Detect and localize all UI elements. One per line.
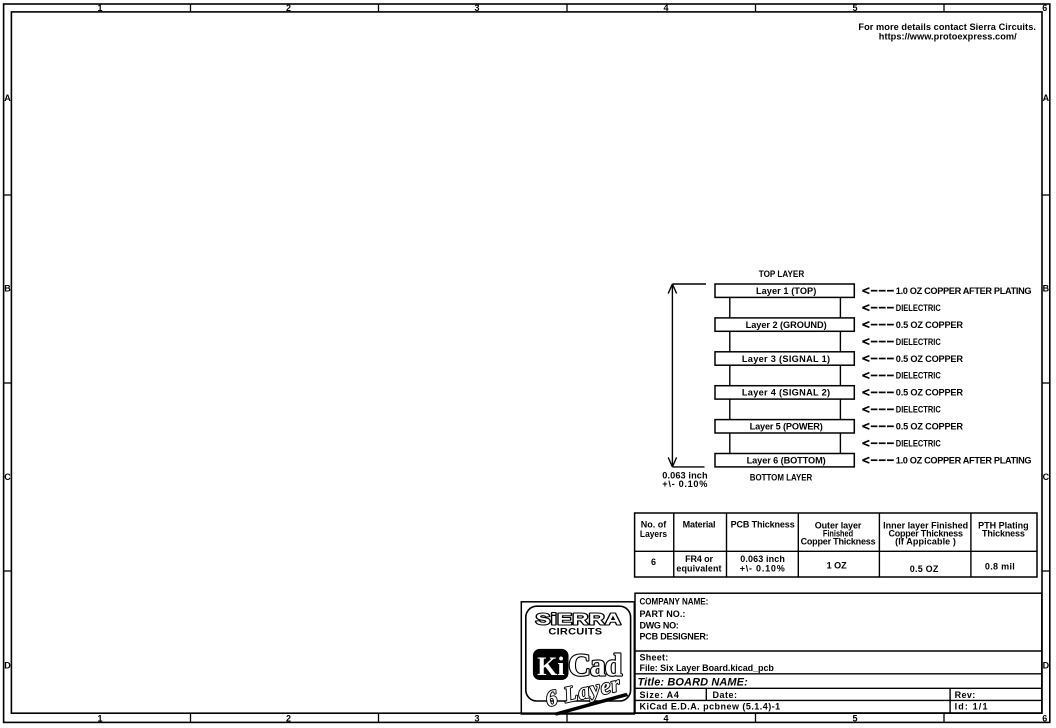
- svg-text:Rev:: Rev:: [955, 690, 976, 700]
- svg-text:A: A: [1043, 93, 1050, 103]
- svg-text:+\- 0.10%: +\- 0.10%: [740, 564, 786, 574]
- svg-text:1.0 OZ COPPER AFTER PLATING: 1.0 OZ COPPER AFTER PLATING: [896, 456, 1032, 466]
- svg-text:3: 3: [474, 3, 479, 13]
- svg-text:PCB DESIGNER:: PCB DESIGNER:: [640, 632, 709, 642]
- svg-text:Thickness: Thickness: [982, 528, 1025, 538]
- svg-text:6: 6: [1042, 713, 1047, 723]
- svg-text:A: A: [4, 93, 11, 103]
- svg-text:DWG NO:: DWG NO:: [640, 620, 679, 630]
- svg-text:1: 1: [97, 3, 102, 13]
- svg-text:0.5 OZ COPPER: 0.5 OZ COPPER: [896, 422, 964, 432]
- svg-text:Layer 2 (GROUND): Layer 2 (GROUND): [746, 320, 827, 330]
- svg-text:6: 6: [651, 557, 656, 567]
- svg-text:Date:: Date:: [713, 690, 738, 700]
- svg-text:Copper Thickness: Copper Thickness: [801, 537, 876, 547]
- svg-text:Ki: Ki: [537, 652, 564, 681]
- svg-text:DIELECTRIC: DIELECTRIC: [896, 404, 941, 415]
- svg-text:4: 4: [663, 713, 668, 723]
- svg-text:6: 6: [1042, 3, 1047, 13]
- svg-text:Layers: Layers: [640, 529, 667, 539]
- svg-text:Material: Material: [683, 520, 716, 530]
- svg-text:Layer 5 (POWER): Layer 5 (POWER): [750, 422, 823, 432]
- svg-text:C: C: [4, 472, 11, 482]
- svg-text:D: D: [4, 661, 11, 671]
- svg-text:0.063 inch: 0.063 inch: [740, 554, 785, 564]
- svg-text:KiCad E.D.A. pcbnew (5.1.4)-1: KiCad E.D.A. pcbnew (5.1.4)-1: [640, 702, 781, 712]
- svg-text:For more details contact Sierr: For more details contact Sierra Circuits…: [858, 22, 1036, 32]
- svg-text:2: 2: [286, 713, 291, 723]
- svg-text:File: Six Layer Board.kicad_pc: File: Six Layer Board.kicad_pcb: [640, 663, 775, 673]
- svg-text:1.0 OZ COPPER AFTER PLATING: 1.0 OZ COPPER AFTER PLATING: [896, 286, 1032, 296]
- svg-text:3: 3: [474, 713, 479, 723]
- svg-text:FR4 or: FR4 or: [685, 554, 713, 564]
- svg-text:Layer 3 (SIGNAL 1): Layer 3 (SIGNAL 1): [742, 354, 831, 364]
- svg-text:CIRCUITS: CIRCUITS: [548, 627, 602, 637]
- svg-text:0.5 OZ COPPER: 0.5 OZ COPPER: [896, 354, 964, 364]
- svg-text:+\- 0.10%: +\- 0.10%: [662, 479, 708, 489]
- svg-text:Size: A4: Size: A4: [640, 690, 680, 700]
- svg-text:B: B: [4, 284, 11, 294]
- svg-text:https://www.protoexpress.com/: https://www.protoexpress.com/: [879, 32, 1017, 42]
- svg-text:0.5 OZ COPPER: 0.5 OZ COPPER: [896, 388, 964, 398]
- svg-text:4: 4: [663, 3, 668, 13]
- svg-text:1 OZ: 1 OZ: [827, 561, 848, 571]
- svg-text:PART NO.:: PART NO.:: [640, 609, 686, 619]
- svg-text:COMPANY NAME:: COMPANY NAME:: [640, 596, 709, 607]
- svg-text:TOP LAYER: TOP LAYER: [759, 269, 805, 280]
- svg-text:0.5 OZ: 0.5 OZ: [910, 564, 939, 574]
- svg-text:(If Appicable ): (If Appicable ): [895, 537, 956, 547]
- svg-text:SiERRA: SiERRA: [536, 611, 622, 628]
- svg-text:DIELECTRIC: DIELECTRIC: [896, 302, 941, 313]
- svg-text:5: 5: [852, 713, 857, 723]
- svg-text:Title: BOARD NAME:: Title: BOARD NAME:: [638, 677, 749, 689]
- svg-text:0.5 OZ COPPER: 0.5 OZ COPPER: [896, 320, 964, 330]
- svg-text:BOTTOM LAYER: BOTTOM LAYER: [750, 472, 813, 483]
- svg-text:D: D: [1043, 661, 1050, 671]
- svg-text:Id: 1/1: Id: 1/1: [955, 702, 989, 712]
- svg-text:DIELECTRIC: DIELECTRIC: [896, 336, 941, 347]
- svg-text:equivalent: equivalent: [676, 564, 721, 574]
- svg-text:Sheet:: Sheet:: [640, 652, 669, 662]
- svg-text:DIELECTRIC: DIELECTRIC: [896, 438, 941, 449]
- svg-text:Layer 1 (TOP): Layer 1 (TOP): [756, 286, 816, 296]
- svg-text:DIELECTRIC: DIELECTRIC: [896, 370, 941, 381]
- svg-text:PCB Thickness: PCB Thickness: [731, 520, 795, 530]
- svg-text:C: C: [1043, 472, 1050, 482]
- svg-text:1: 1: [97, 713, 102, 723]
- svg-text:0.8 mil: 0.8 mil: [985, 562, 1015, 572]
- svg-text:Layer 6 (BOTTOM): Layer 6 (BOTTOM): [747, 456, 826, 466]
- svg-text:2: 2: [286, 3, 291, 13]
- svg-text:Layer 4 (SIGNAL 2): Layer 4 (SIGNAL 2): [742, 388, 831, 398]
- svg-text:B: B: [1043, 284, 1050, 294]
- svg-text:5: 5: [852, 3, 857, 13]
